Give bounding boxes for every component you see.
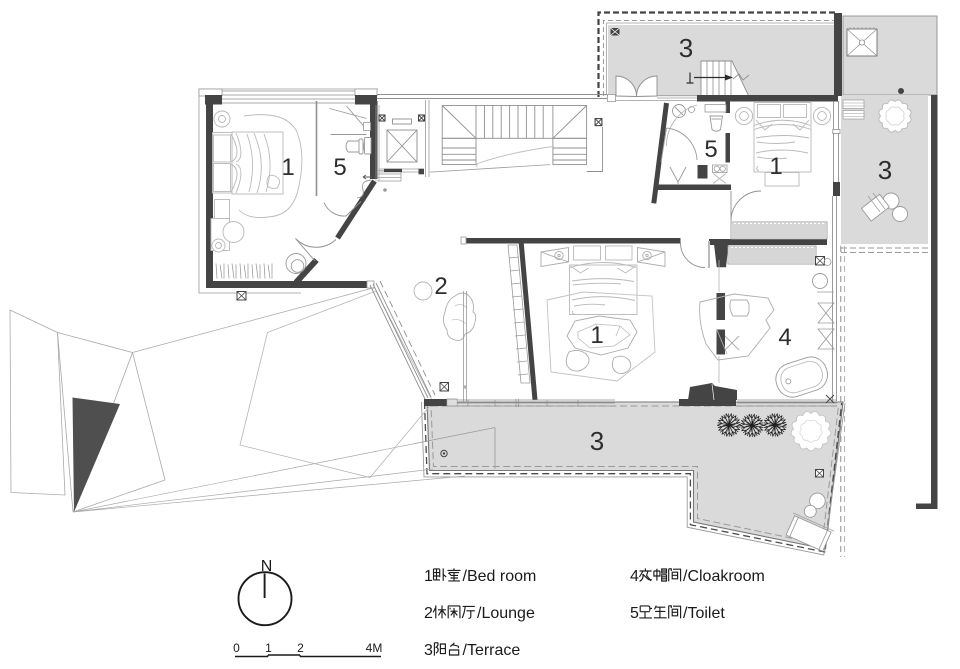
svg-text:5: 5 — [333, 154, 346, 181]
svg-text:/Lounge: /Lounge — [477, 605, 535, 622]
svg-text:2: 2 — [297, 641, 304, 655]
svg-text:N: N — [261, 558, 273, 575]
svg-text:5: 5 — [630, 605, 639, 622]
svg-text:/Cloakroom: /Cloakroom — [683, 568, 765, 585]
svg-text:1: 1 — [265, 641, 272, 655]
svg-text:4: 4 — [630, 568, 639, 585]
svg-text:4: 4 — [778, 324, 791, 351]
svg-text:3: 3 — [878, 155, 892, 185]
svg-text:/Bed room: /Bed room — [463, 568, 537, 585]
svg-text:2: 2 — [424, 605, 433, 622]
svg-text:4M: 4M — [366, 641, 383, 655]
svg-text:0: 0 — [233, 641, 240, 655]
svg-text:3: 3 — [679, 33, 693, 63]
svg-text:1: 1 — [769, 153, 782, 180]
svg-text:/Terrace: /Terrace — [463, 642, 521, 659]
svg-text:3: 3 — [590, 426, 604, 456]
svg-text:/Toilet: /Toilet — [683, 605, 725, 622]
svg-text:5: 5 — [704, 136, 717, 163]
svg-text:1: 1 — [590, 322, 603, 349]
svg-text:2: 2 — [434, 273, 447, 300]
svg-text:3: 3 — [424, 642, 433, 659]
svg-text:1: 1 — [424, 568, 433, 585]
